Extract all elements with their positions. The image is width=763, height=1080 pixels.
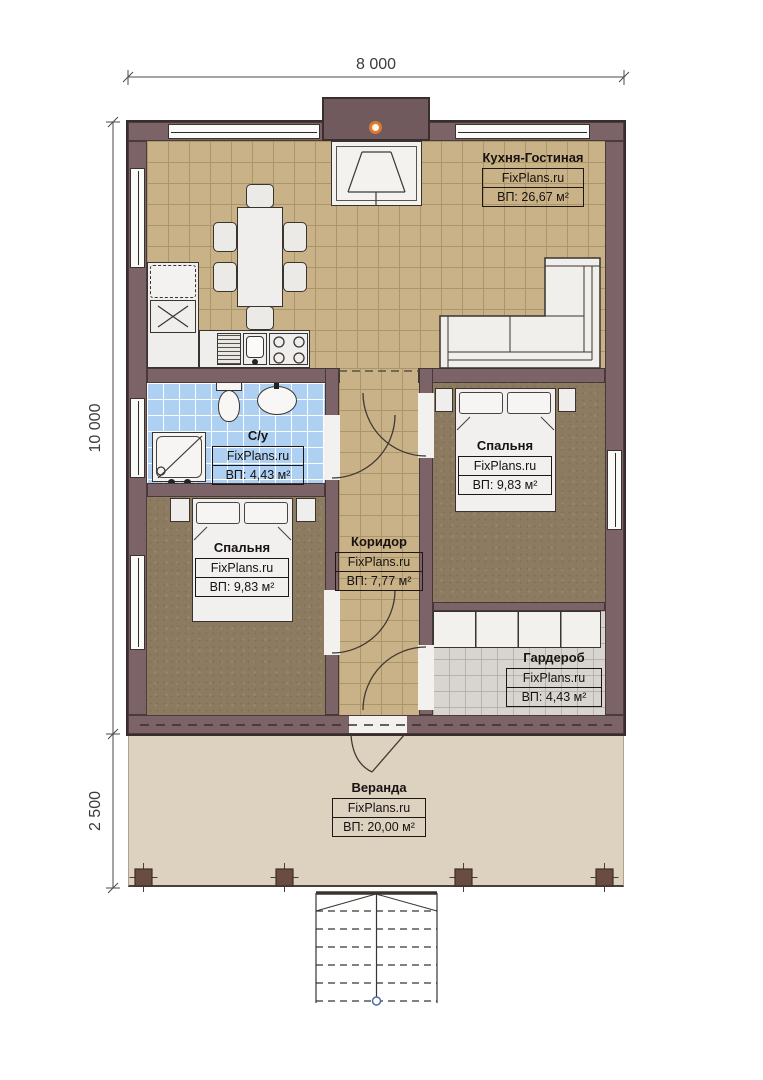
stairs xyxy=(316,893,437,1005)
fixplans-watermark: FixPlans.ru xyxy=(213,447,303,466)
room-label-wardrobe: Гардероб FixPlans.ru ВП: 4,43 м² xyxy=(506,650,602,707)
room-label-corridor: Коридор FixPlans.ru ВП: 7,77 м² xyxy=(335,534,423,591)
dimension-height-veranda: 2 500 xyxy=(87,781,107,841)
room-area: ВП: 9,83 м² xyxy=(459,476,551,494)
room-title: С/у xyxy=(212,428,304,443)
stairs-start-marker xyxy=(373,997,381,1005)
room-area: ВП: 7,77 м² xyxy=(336,572,422,590)
room-title: Веранда xyxy=(332,780,426,795)
fixplans-watermark: FixPlans.ru xyxy=(196,559,288,578)
room-area: ВП: 4,43 м² xyxy=(507,688,601,706)
room-area: ВП: 9,83 м² xyxy=(196,578,288,596)
room-label-bedroom-left: Спальня FixPlans.ru ВП: 9,83 м² xyxy=(195,540,289,597)
chimney xyxy=(322,97,430,141)
room-label-bedroom-right: Спальня FixPlans.ru ВП: 9,83 м² xyxy=(458,438,552,495)
house-outline xyxy=(126,120,626,736)
room-label-kitchen-living: Кухня-Гостиная FixPlans.ru ВП: 26,67 м² xyxy=(482,150,584,207)
dimension-height-main: 10 000 xyxy=(87,398,107,458)
fixplans-watermark: FixPlans.ru xyxy=(459,457,551,476)
floor-plan: 8 000 10 000 2 500 Кухня-Гостиная FixPla… xyxy=(0,0,763,1080)
fixplans-watermark: FixPlans.ru xyxy=(507,669,601,688)
fixplans-watermark: FixPlans.ru xyxy=(483,169,583,188)
fixplans-watermark: FixPlans.ru xyxy=(336,553,422,572)
room-area: ВП: 4,43 м² xyxy=(213,466,303,484)
room-title: Спальня xyxy=(458,438,552,453)
room-label-bathroom: С/у FixPlans.ru ВП: 4,43 м² xyxy=(212,428,304,485)
room-area: ВП: 26,67 м² xyxy=(483,188,583,206)
room-title: Гардероб xyxy=(506,650,602,665)
room-area: ВП: 20,00 м² xyxy=(333,818,425,836)
room-label-veranda: Веранда FixPlans.ru ВП: 20,00 м² xyxy=(332,780,426,837)
fixplans-watermark: FixPlans.ru xyxy=(333,799,425,818)
chimney-flue-icon xyxy=(369,121,382,134)
dimension-width: 8 000 xyxy=(341,56,411,74)
room-title: Кухня-Гостиная xyxy=(482,150,584,165)
room-title: Коридор xyxy=(335,534,423,549)
room-title: Спальня xyxy=(195,540,289,555)
